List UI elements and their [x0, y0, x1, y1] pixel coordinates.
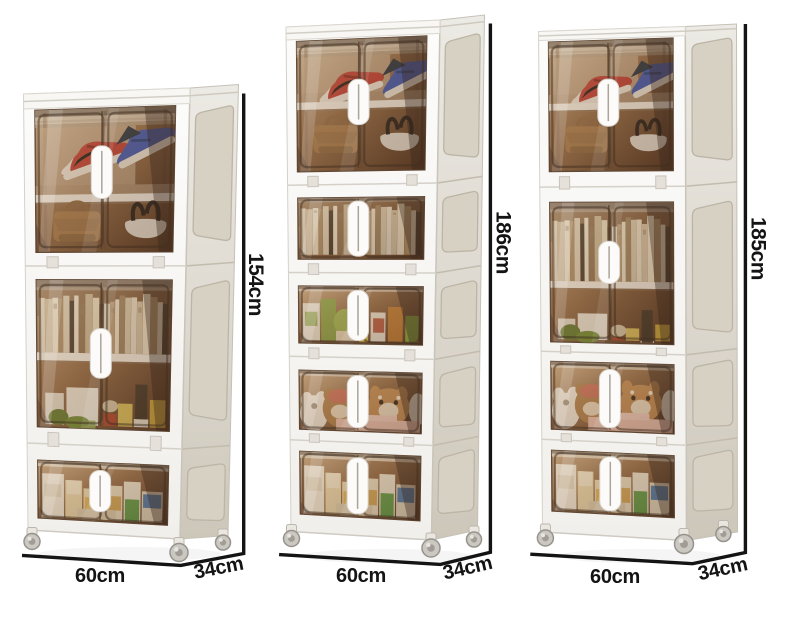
svg-text:60cm: 60cm [590, 566, 640, 588]
svg-text:60cm: 60cm [75, 565, 125, 587]
svg-text:186cm: 186cm [492, 211, 515, 274]
svg-text:60cm: 60cm [336, 565, 386, 587]
svg-text:154cm: 154cm [244, 253, 267, 316]
svg-text:185cm: 185cm [747, 217, 770, 280]
